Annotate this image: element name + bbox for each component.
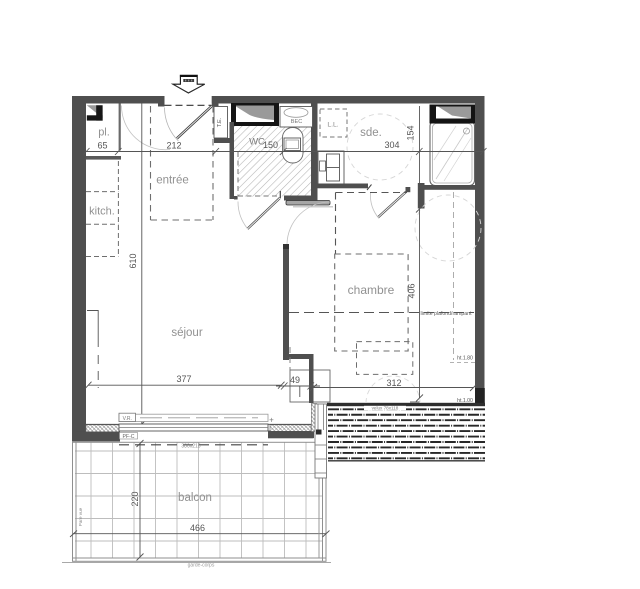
svg-text:BEC: BEC bbox=[291, 119, 303, 125]
svg-text:610: 610 bbox=[128, 253, 138, 268]
svg-text:212: 212 bbox=[166, 141, 181, 151]
svg-text:ht.1.80: ht.1.80 bbox=[457, 356, 473, 362]
svg-text:466: 466 bbox=[190, 523, 205, 533]
svg-text:V.R.: V.R. bbox=[123, 416, 132, 422]
svg-text:312: 312 bbox=[386, 378, 401, 388]
svg-text:T.E.: T.E. bbox=[217, 117, 223, 127]
svg-text:chambre: chambre bbox=[348, 283, 395, 297]
svg-text:304: 304 bbox=[384, 140, 399, 150]
svg-text:L.L.: L.L. bbox=[327, 122, 338, 129]
svg-text:406: 406 bbox=[407, 283, 417, 298]
svg-text:220: 220 bbox=[130, 491, 140, 506]
svg-text:entrée: entrée bbox=[156, 175, 189, 187]
svg-text:65: 65 bbox=[97, 141, 107, 151]
svg-text:49: 49 bbox=[290, 375, 300, 385]
svg-text:kitch.: kitch. bbox=[89, 206, 115, 218]
svg-text:pl.: pl. bbox=[98, 127, 110, 139]
svg-text:150: 150 bbox=[263, 140, 278, 150]
svg-text:PF-C: PF-C bbox=[122, 434, 134, 440]
svg-text:sde.: sde. bbox=[360, 127, 382, 139]
svg-text:Pare vue: Pare vue bbox=[78, 507, 83, 526]
svg-text:154: 154 bbox=[406, 125, 416, 140]
svg-text:limite plafond/rampant: limite plafond/rampant bbox=[420, 311, 472, 317]
svg-text:séjour: séjour bbox=[171, 327, 202, 339]
svg-text:377: 377 bbox=[176, 374, 191, 384]
svg-text:balcon: balcon bbox=[178, 492, 212, 504]
svg-text:velux 78x118: velux 78x118 bbox=[372, 406, 399, 411]
svg-text:garde-corps: garde-corps bbox=[188, 563, 215, 569]
svg-text:+: + bbox=[269, 416, 274, 425]
svg-text:ht.1.00: ht.1.00 bbox=[457, 398, 473, 404]
svg-text:380x215: 380x215 bbox=[181, 444, 200, 450]
